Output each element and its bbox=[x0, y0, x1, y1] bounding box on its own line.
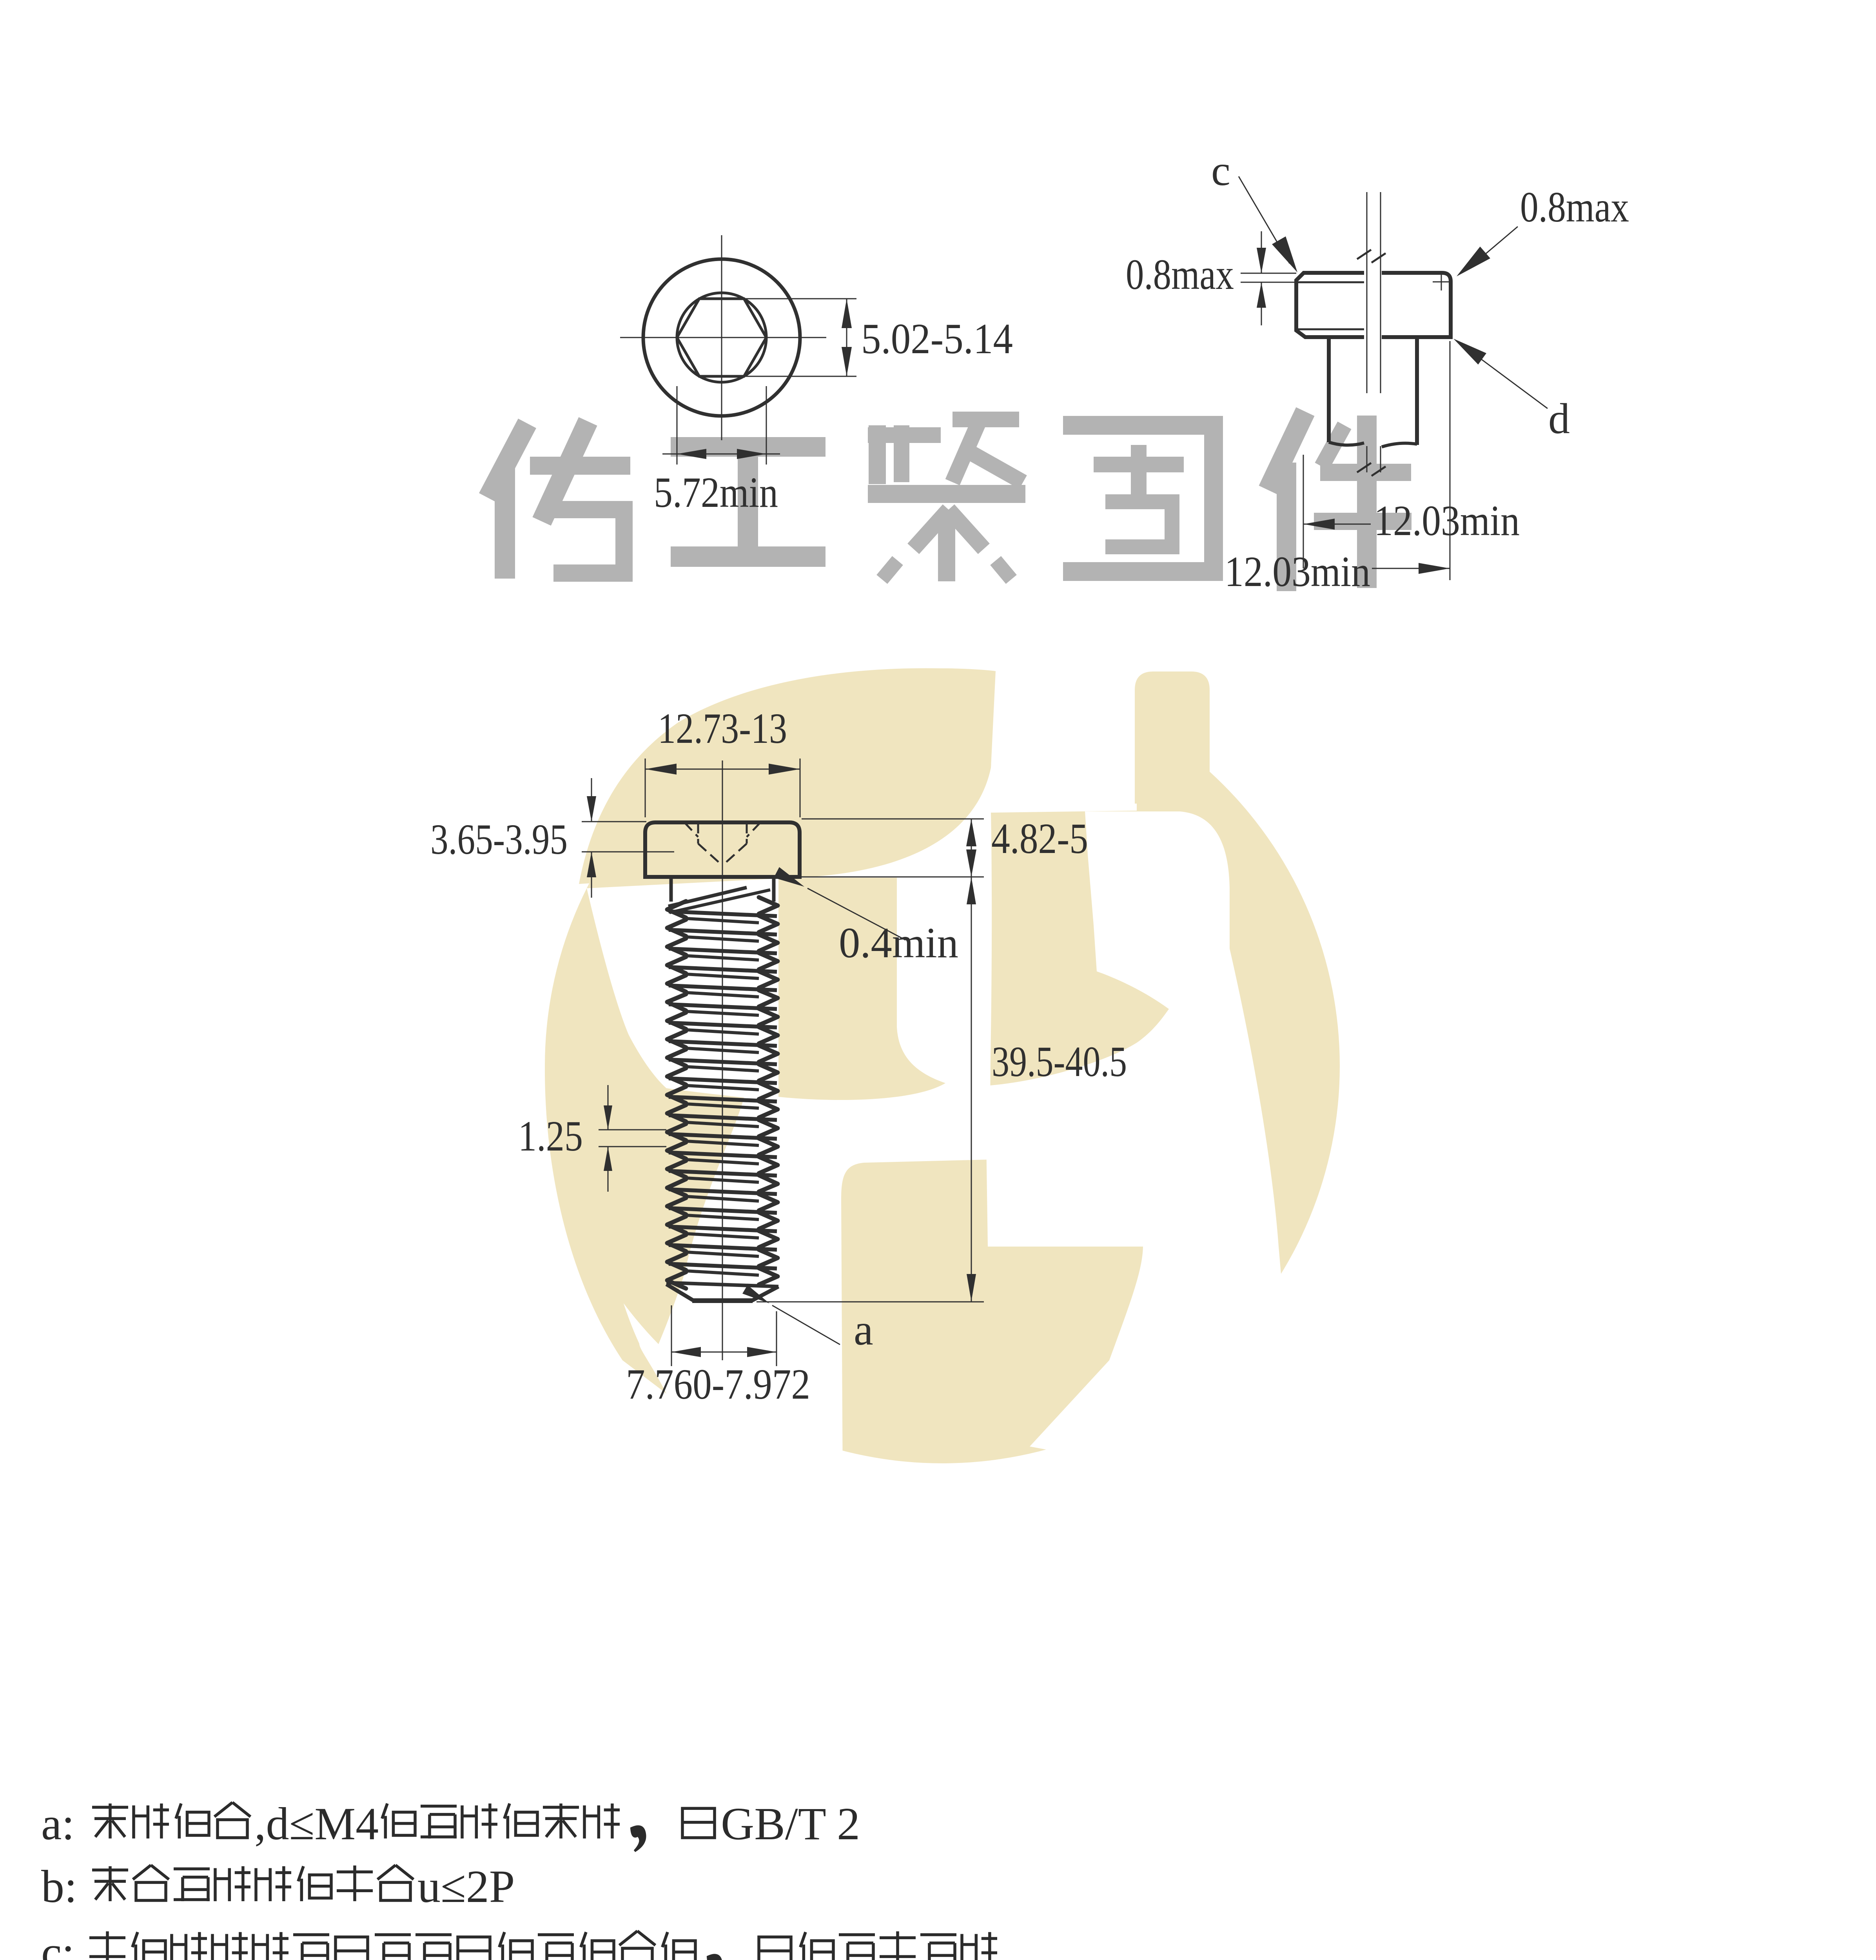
svg-text:39.5-40.5: 39.5-40.5 bbox=[992, 1038, 1127, 1085]
svg-text:7.760-7.972: 7.760-7.972 bbox=[626, 1360, 810, 1408]
svg-text:0.4min: 0.4min bbox=[839, 919, 958, 967]
svg-text:c: c bbox=[1211, 147, 1230, 194]
svg-text:3.65-3.95: 3.65-3.95 bbox=[430, 815, 568, 863]
svg-text:12.03min: 12.03min bbox=[1225, 548, 1370, 595]
svg-text:5.72min: 5.72min bbox=[654, 468, 778, 516]
svg-text:5.02-5.14: 5.02-5.14 bbox=[861, 315, 1013, 363]
svg-text:a:: a: bbox=[41, 1798, 74, 1849]
svg-text:,d≤M4: ,d≤M4 bbox=[254, 1798, 379, 1849]
svg-text:1.25: 1.25 bbox=[518, 1112, 583, 1160]
svg-text:d: d bbox=[1548, 395, 1570, 443]
svg-text:4.82-5: 4.82-5 bbox=[991, 815, 1088, 862]
svg-text:a: a bbox=[854, 1306, 873, 1354]
svg-text:12.73-13: 12.73-13 bbox=[658, 704, 787, 752]
svg-text:0.8max: 0.8max bbox=[1520, 183, 1629, 231]
svg-text:u≤2P: u≤2P bbox=[417, 1861, 515, 1912]
svg-text:0.8max: 0.8max bbox=[1126, 250, 1234, 298]
svg-text:GB/T 2: GB/T 2 bbox=[721, 1798, 860, 1849]
svg-text:b:: b: bbox=[41, 1861, 77, 1912]
svg-text:c:: c: bbox=[41, 1927, 74, 1960]
svg-text:12.03min: 12.03min bbox=[1374, 497, 1520, 544]
